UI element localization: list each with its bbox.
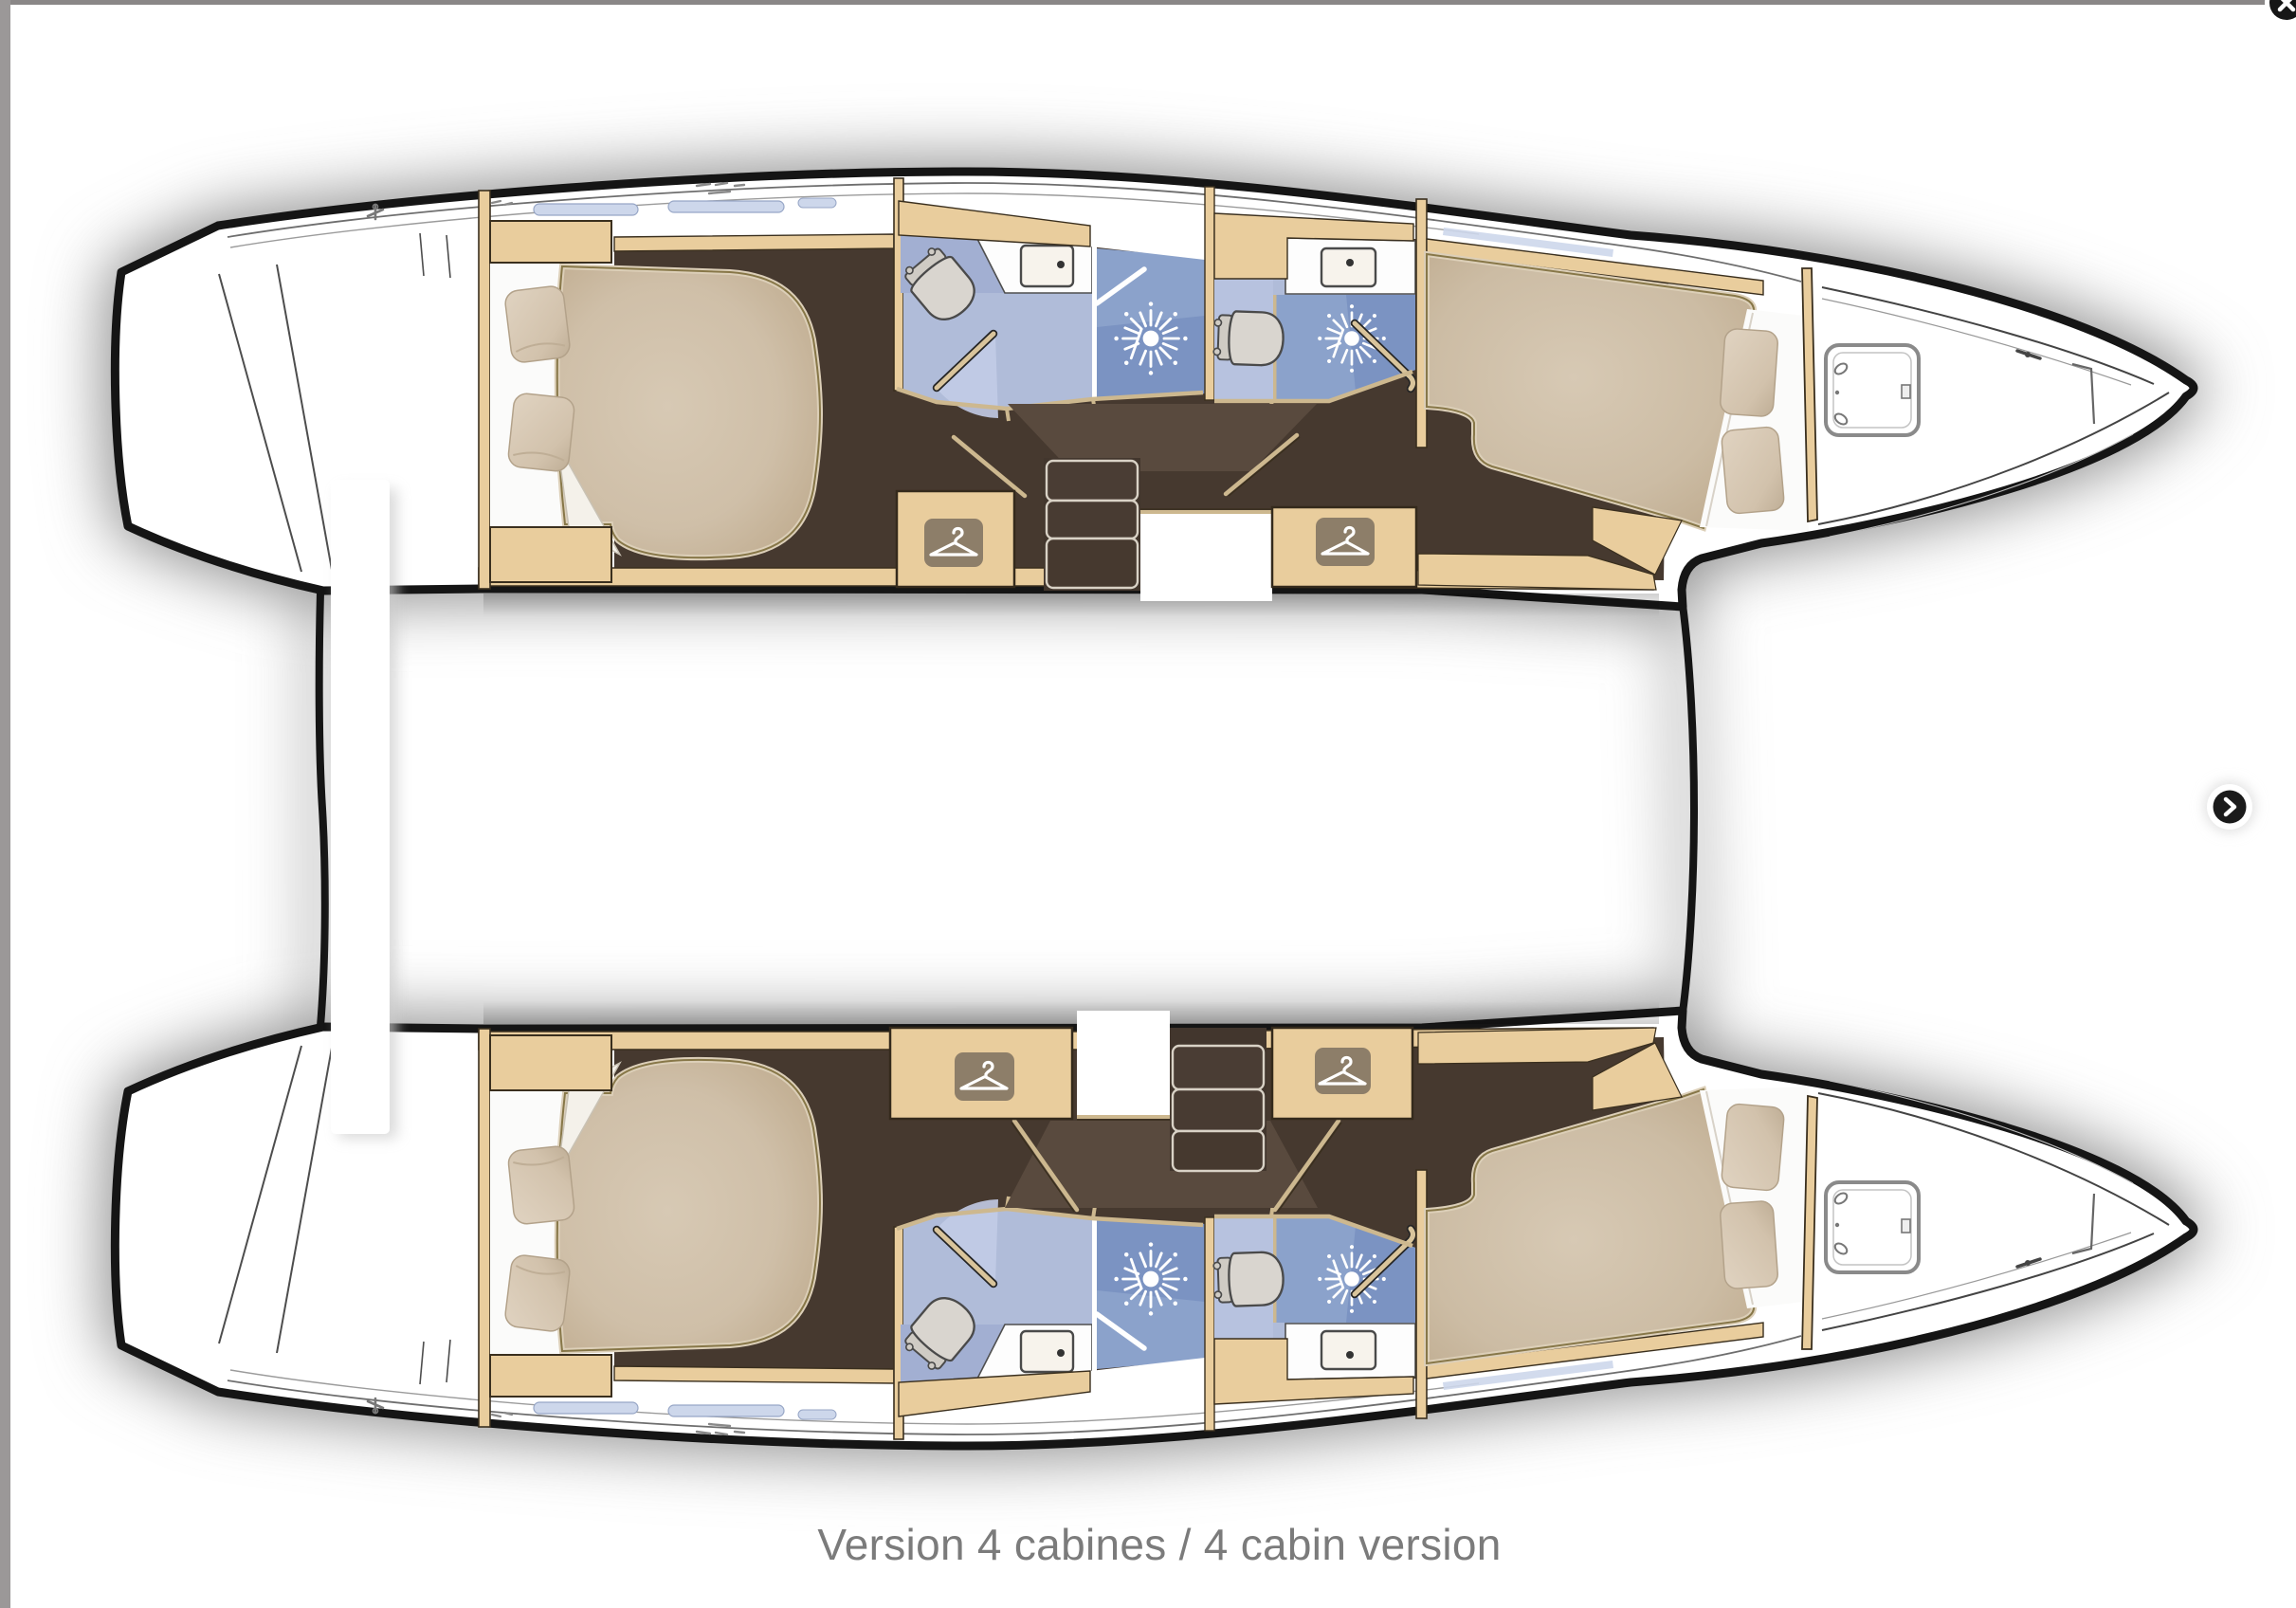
- svg-text:Version 4 cabines / 4 cabin ve: Version 4 cabines / 4 cabin version: [817, 1520, 1501, 1569]
